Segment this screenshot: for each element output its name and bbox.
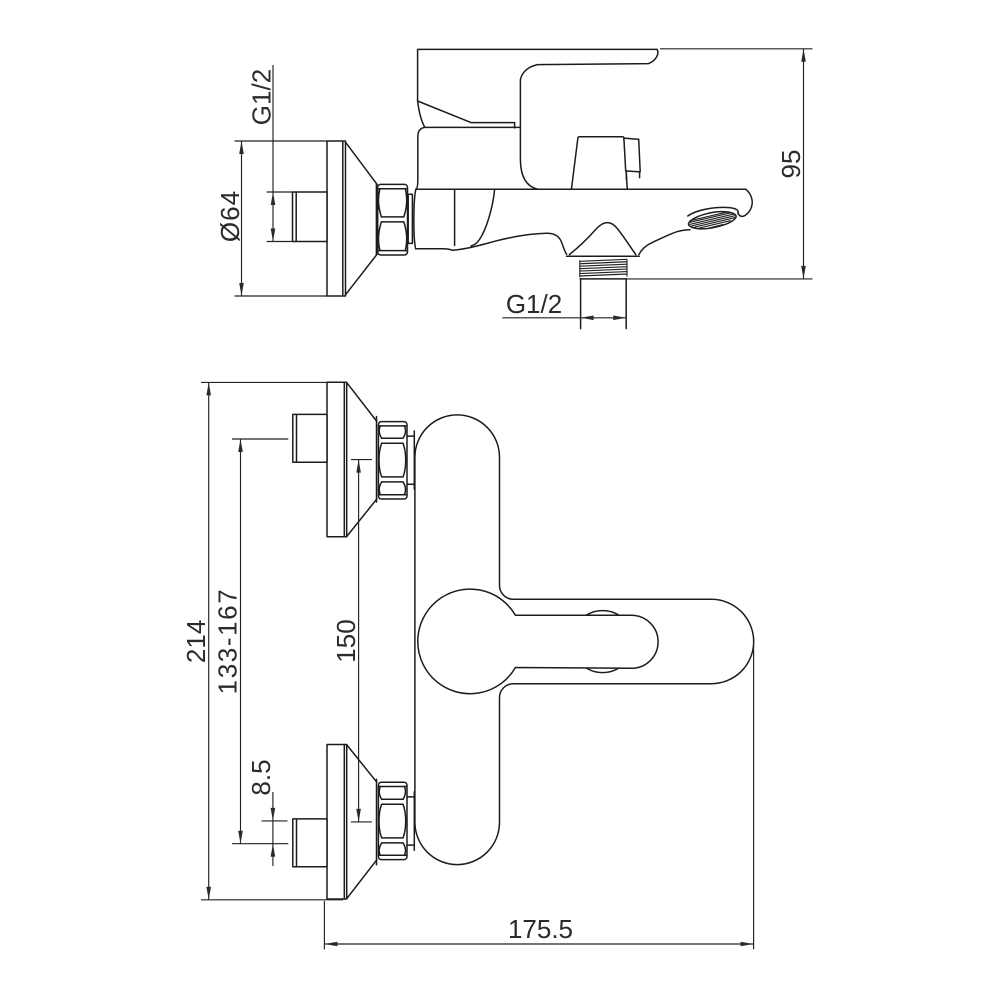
svg-text:133-167: 133-167: [213, 588, 243, 695]
svg-text:95: 95: [776, 150, 806, 179]
svg-text:G1/2: G1/2: [506, 289, 562, 319]
svg-text:214: 214: [181, 620, 211, 663]
svg-text:150: 150: [331, 619, 361, 662]
svg-text:Ø64: Ø64: [215, 190, 245, 242]
svg-text:G1/2: G1/2: [247, 69, 277, 125]
svg-text:175.5: 175.5: [508, 914, 573, 944]
svg-text:8.5: 8.5: [246, 759, 276, 795]
